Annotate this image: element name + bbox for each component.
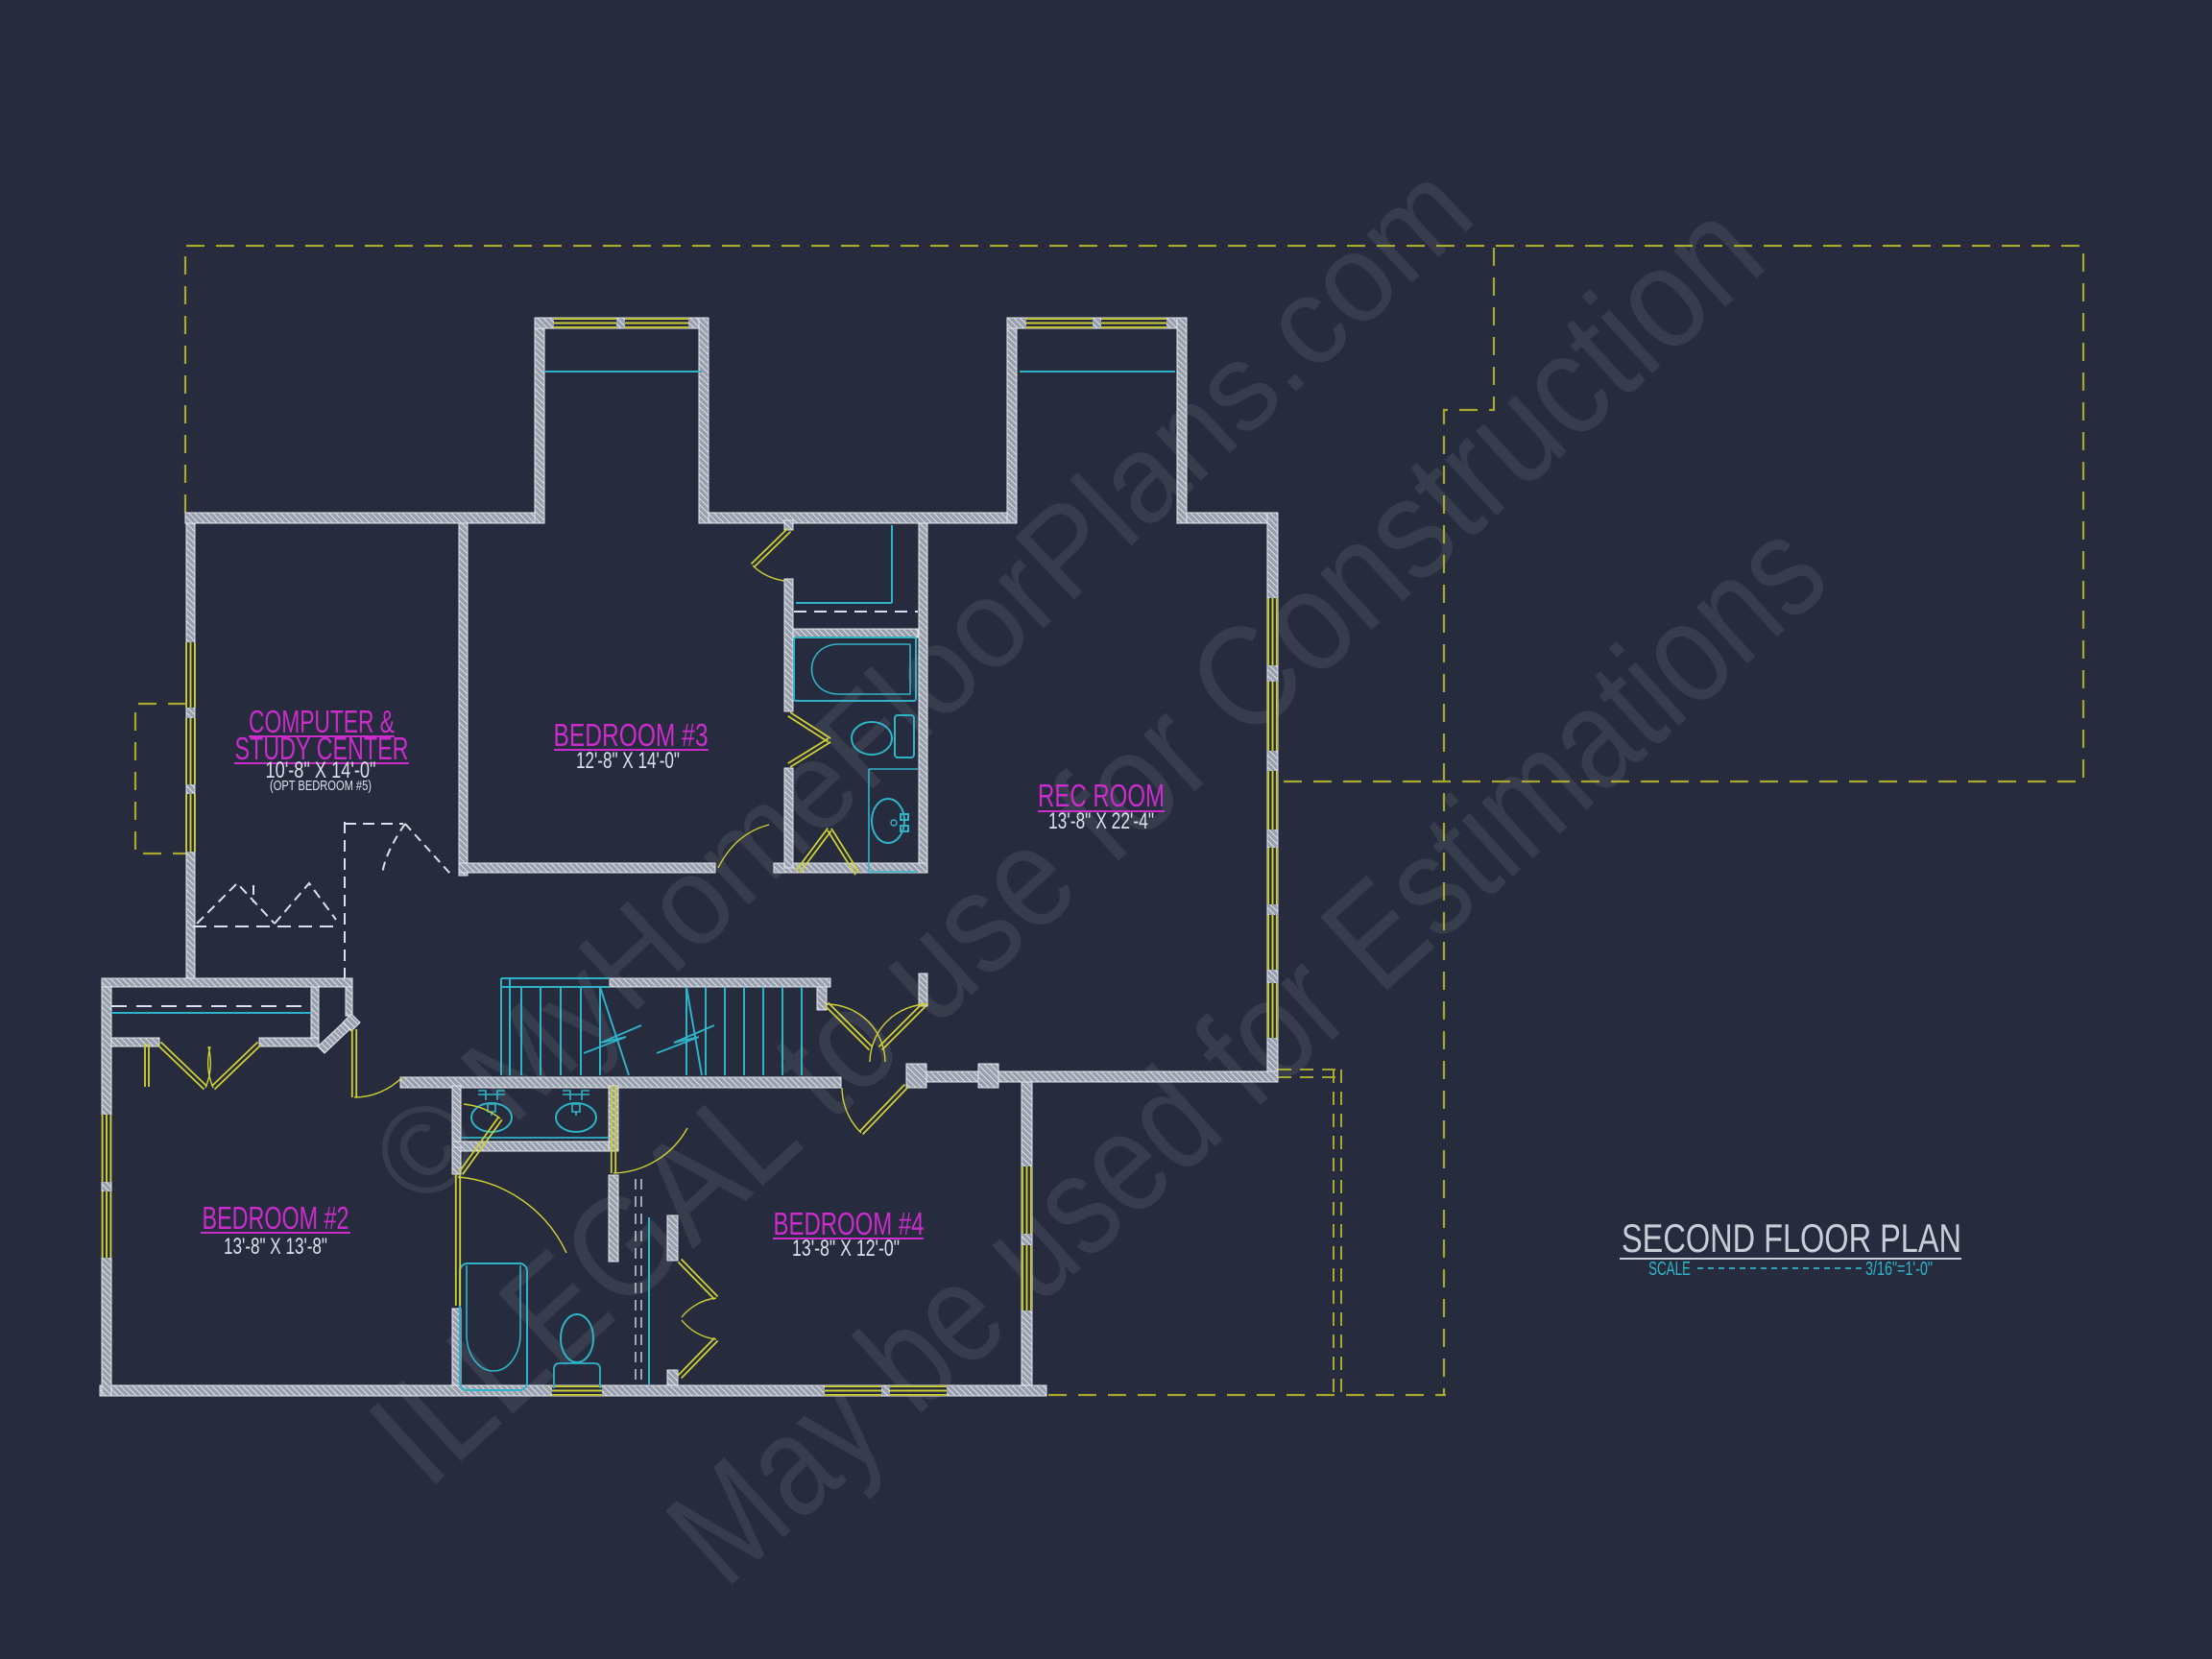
svg-text:13'-8" X 22'-4": 13'-8" X 22'-4" — [1048, 808, 1154, 834]
svg-text:13'-8" X 13'-8": 13'-8" X 13'-8" — [224, 1234, 327, 1260]
svg-text:SECOND FLOOR PLAN: SECOND FLOOR PLAN — [1622, 1215, 1961, 1261]
svg-text:BEDROOM #2: BEDROOM #2 — [203, 1200, 349, 1236]
svg-text:3/16"=1'-0": 3/16"=1'-0" — [1865, 1259, 1933, 1280]
svg-text:13'-8" X 12'-0": 13'-8" X 12'-0" — [792, 1236, 900, 1262]
svg-text:12'-8" X 14'-0": 12'-8" X 14'-0" — [576, 748, 680, 774]
svg-text:(OPT BEDROOM #5): (OPT BEDROOM #5) — [270, 778, 372, 794]
svg-text:SCALE: SCALE — [1648, 1259, 1691, 1280]
